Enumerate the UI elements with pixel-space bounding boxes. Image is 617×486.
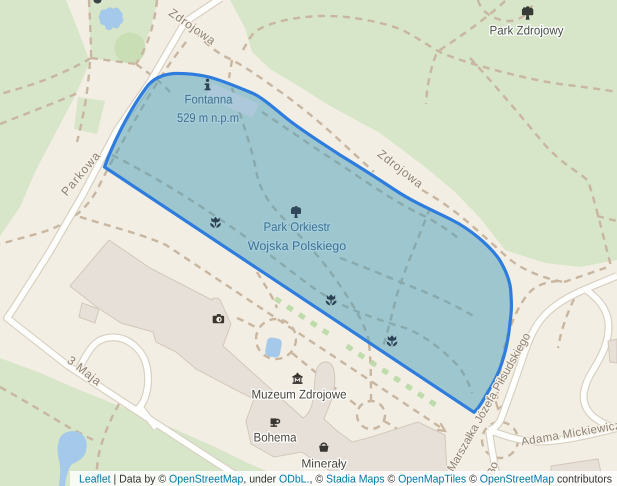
svg-text:Leaflet | Data by © OpenStreet: Leaflet | Data by © OpenStreetMap, under… <box>79 474 612 486</box>
svg-text:Wojska Polskiego: Wojska Polskiego <box>248 239 346 253</box>
svg-text:Park Zdrojowy: Park Zdrojowy <box>490 24 565 38</box>
svg-text:Bohema: Bohema <box>254 431 297 445</box>
svg-text:Fontanna: Fontanna <box>185 93 233 107</box>
svg-text:529 m n.p.m: 529 m n.p.m <box>177 111 239 125</box>
svg-text:Park Orkiestr: Park Orkiestr <box>264 220 331 234</box>
svg-text:Muzeum Zdrojowe: Muzeum Zdrojowe <box>252 388 347 402</box>
svg-text:Minerały: Minerały <box>301 457 346 471</box>
